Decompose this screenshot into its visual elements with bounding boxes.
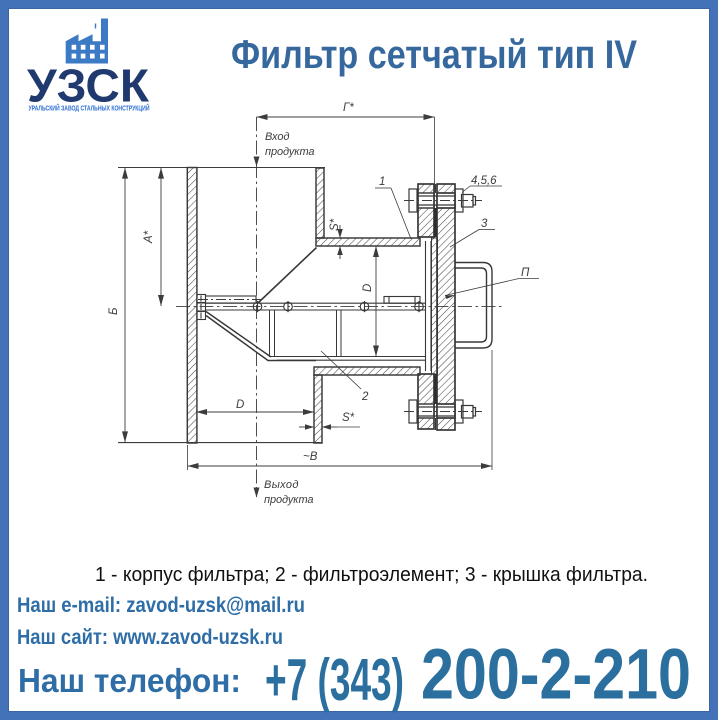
- svg-text:1: 1: [379, 176, 385, 188]
- svg-text:D: D: [362, 284, 374, 292]
- svg-text:П: П: [521, 267, 530, 279]
- svg-text:~В: ~В: [303, 451, 318, 463]
- svg-text:продукта: продукта: [265, 146, 315, 158]
- svg-text:Б: Б: [108, 307, 120, 315]
- svg-text:Г*: Г*: [343, 102, 354, 114]
- svg-text:S*: S*: [329, 218, 341, 231]
- svg-text:2: 2: [361, 391, 369, 403]
- svg-text:Вход: Вход: [265, 131, 290, 143]
- svg-text:Выход: Выход: [264, 479, 299, 491]
- svg-text:А*: А*: [143, 230, 155, 244]
- svg-text:D: D: [236, 399, 244, 411]
- svg-text:продукта: продукта: [264, 494, 314, 506]
- svg-text:3: 3: [481, 218, 488, 230]
- svg-text:S*: S*: [342, 412, 355, 424]
- svg-text:4,5,6: 4,5,6: [471, 175, 497, 187]
